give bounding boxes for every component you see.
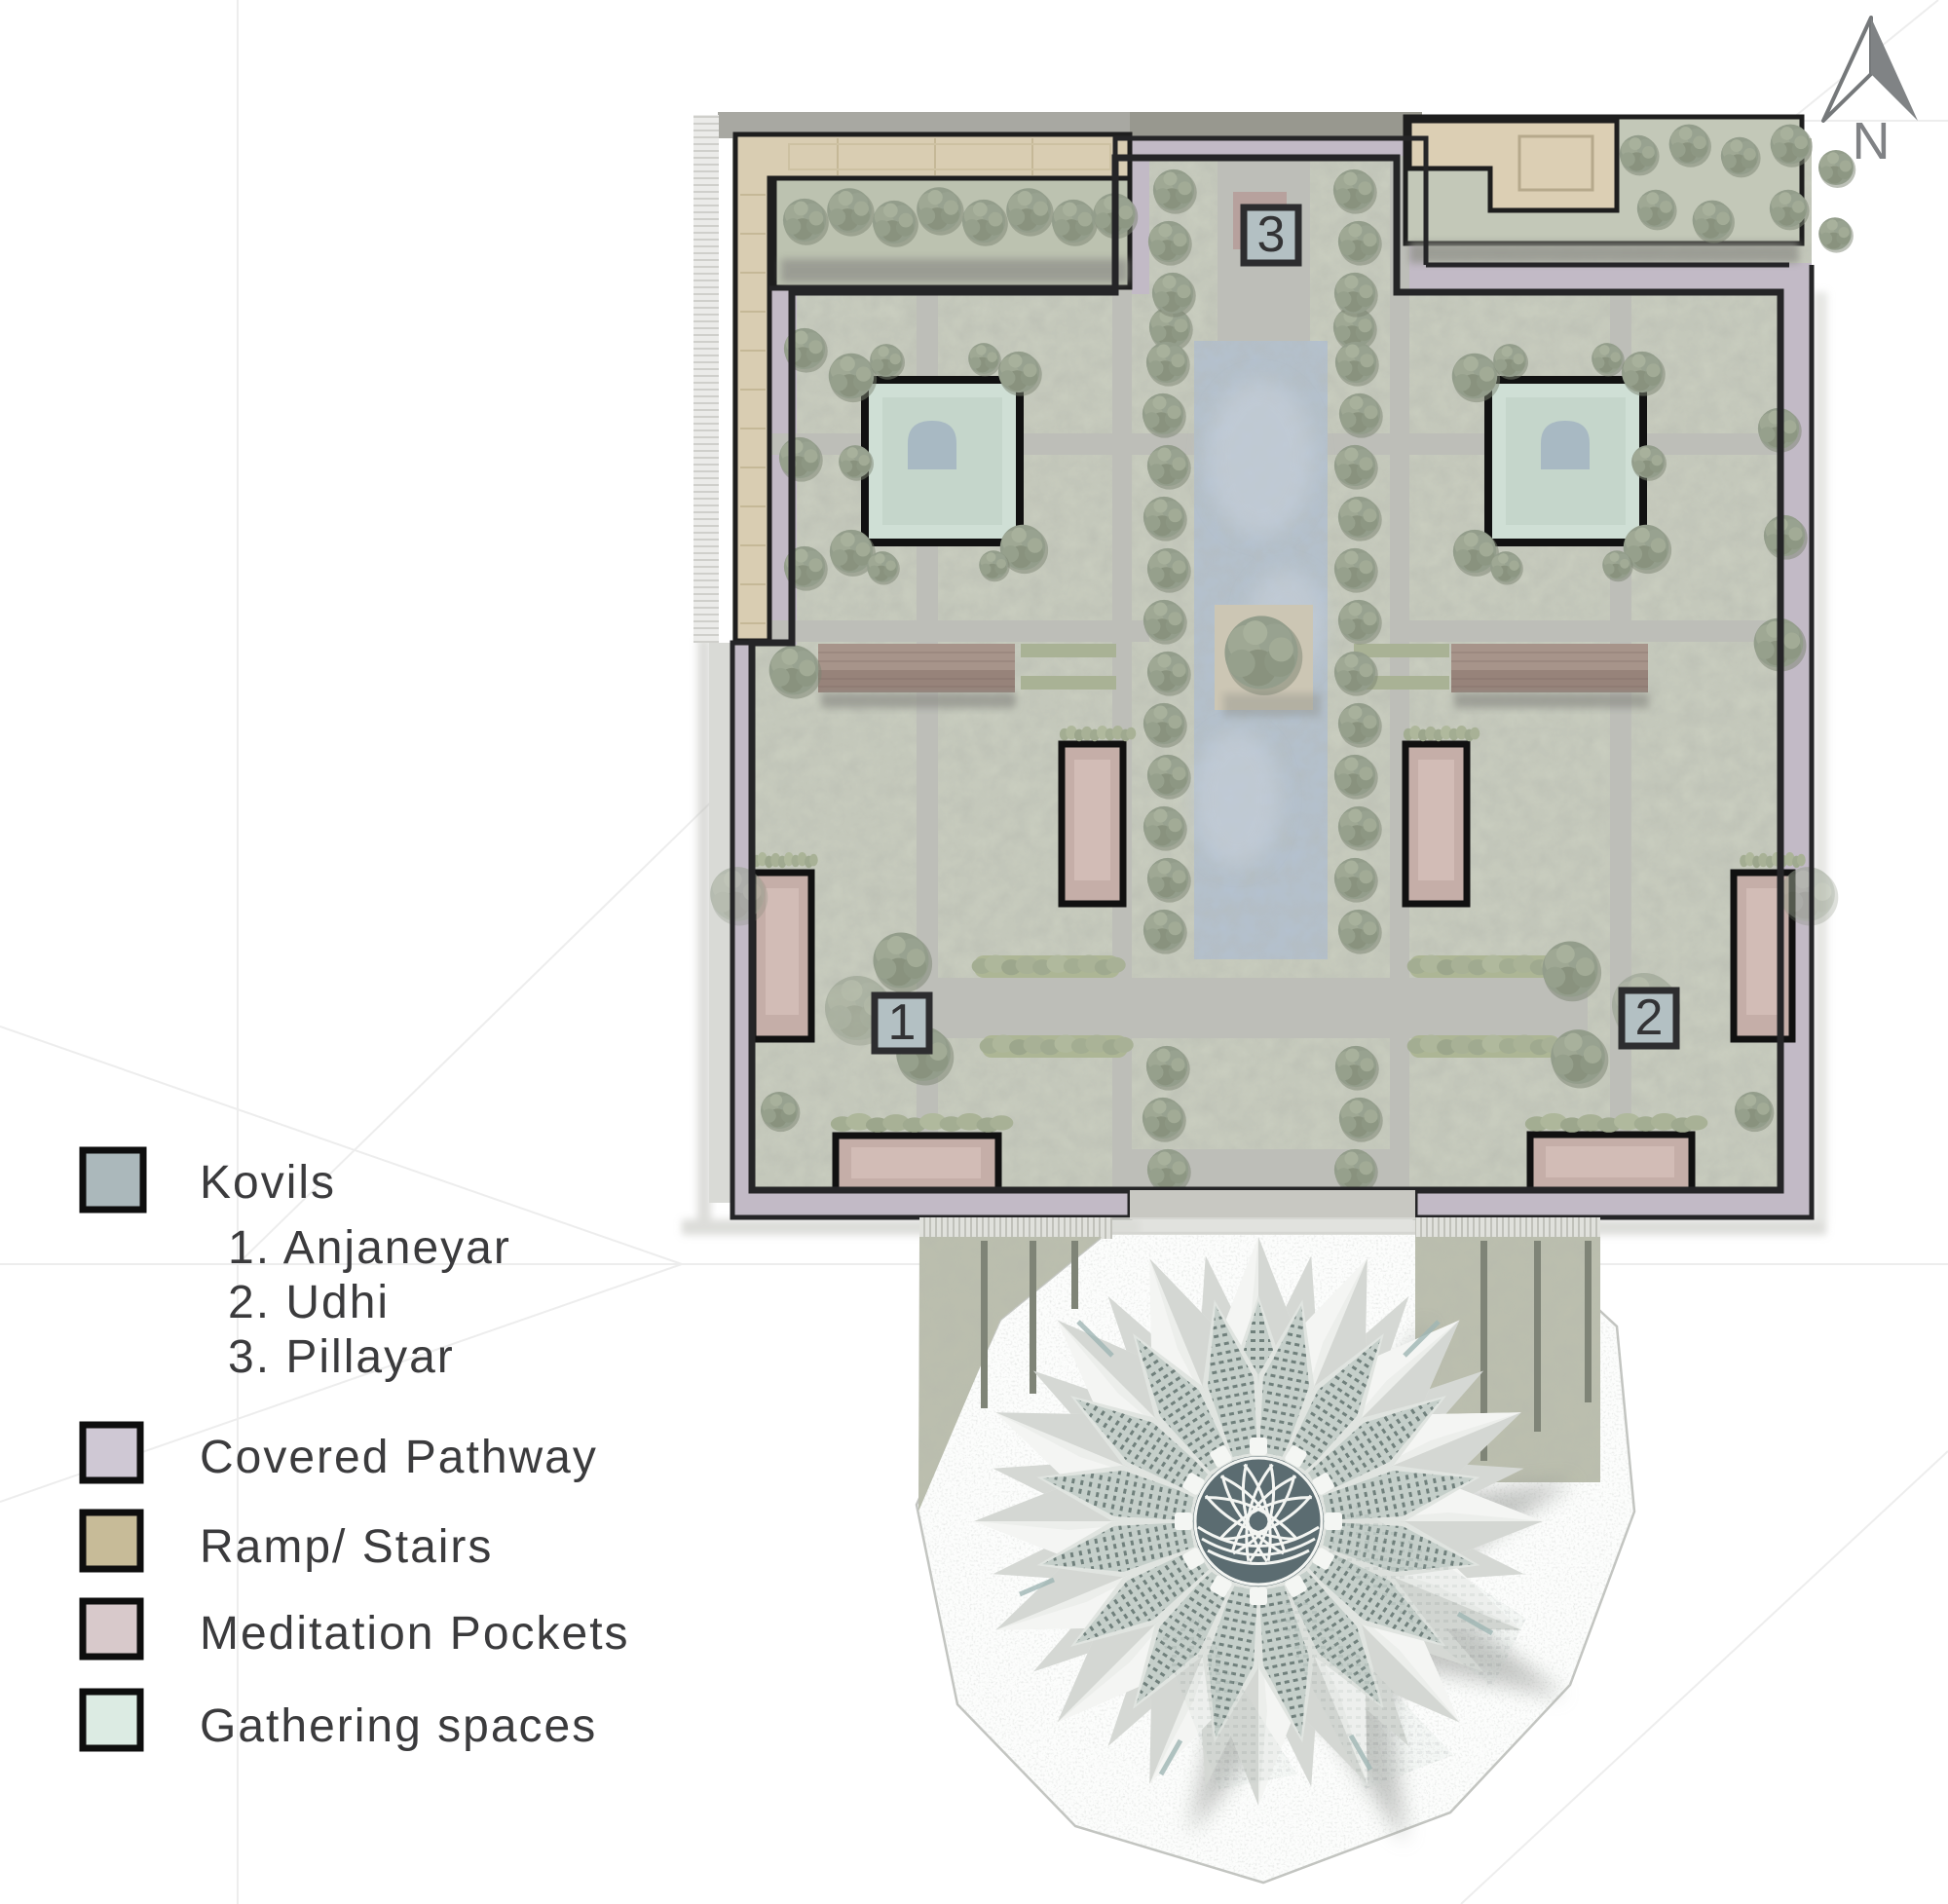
svg-text:Ramp/ Stairs: Ramp/ Stairs (200, 1521, 493, 1573)
svg-text:Kovils: Kovils (200, 1157, 336, 1209)
svg-text:1: 1 (888, 994, 917, 1051)
svg-text:Covered Pathway: Covered Pathway (200, 1432, 598, 1483)
svg-text:Meditation Pockets: Meditation Pockets (200, 1608, 630, 1660)
svg-text:N: N (1853, 112, 1891, 170)
svg-text:3. Pillayar: 3. Pillayar (228, 1331, 455, 1383)
svg-text:Gathering spaces: Gathering spaces (200, 1700, 597, 1752)
svg-text:1. Anjaneyar: 1. Anjaneyar (228, 1222, 511, 1274)
svg-text:3: 3 (1257, 206, 1286, 263)
svg-text:2. Udhi: 2. Udhi (228, 1277, 390, 1328)
svg-text:2: 2 (1635, 989, 1664, 1046)
